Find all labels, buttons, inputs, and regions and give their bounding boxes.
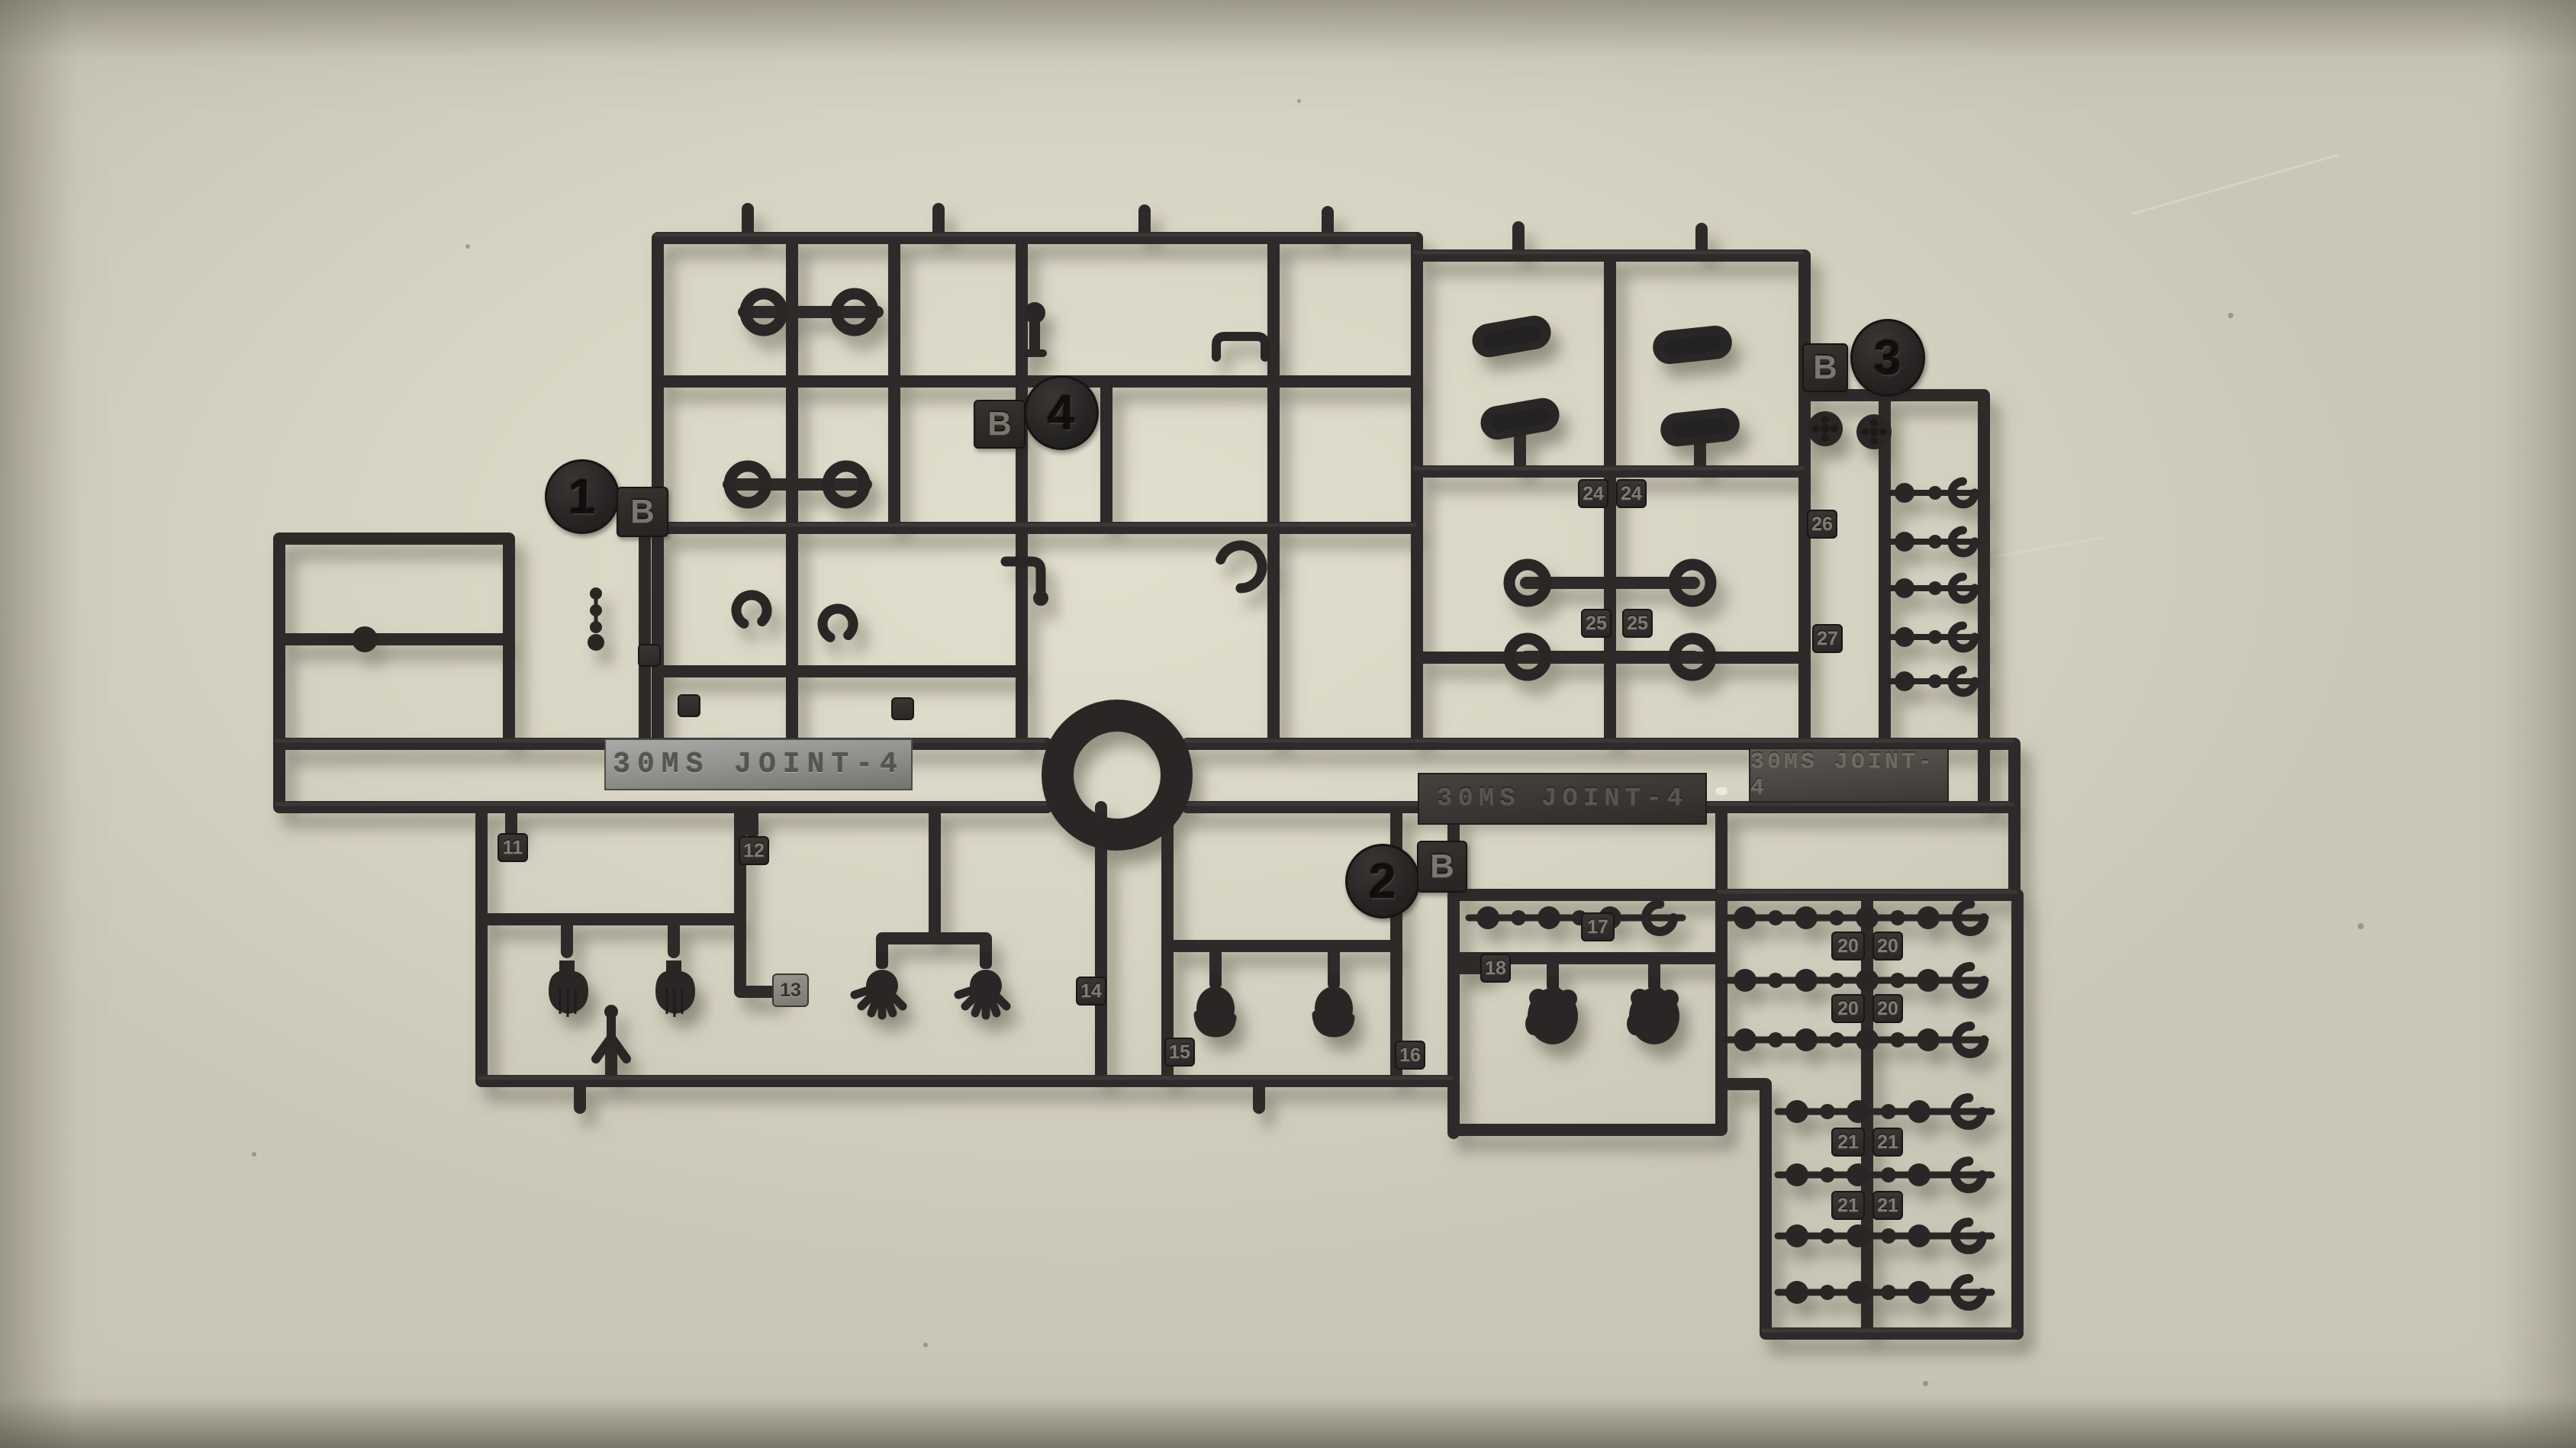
part-tag-21-right: 21 (1872, 1128, 1903, 1157)
part-tag-15: 15 (1164, 1038, 1195, 1067)
part-tag-18: 18 (1480, 954, 1511, 983)
runner-sprue (0, 0, 2576, 1448)
runner-marker-4: 4 (1024, 375, 1099, 450)
curved-bracket-part (1213, 539, 1268, 594)
flat-hand-part (655, 961, 695, 1017)
ball-link-part (1891, 577, 1979, 600)
clip-ring-part (731, 590, 773, 632)
material-tab-2: B (1417, 841, 1467, 893)
ball-link-part (1891, 626, 1979, 648)
material-tab-1: B (617, 487, 668, 537)
bracket-part (1216, 336, 1265, 357)
runner-marker-1: 1 (545, 459, 620, 534)
bean-cover-part (1470, 313, 1554, 359)
part-tag-11: 11 (497, 833, 528, 862)
ball-link-chain-part (1726, 967, 1985, 994)
ball-link-chain-part (1778, 1098, 1992, 1125)
ball-link-chain-part (1778, 1161, 1992, 1189)
part-tag-small (678, 694, 700, 717)
bean-cover-part (1651, 324, 1734, 366)
ball-link-part (1891, 670, 1979, 693)
name-plate-right: 30MS JOINT-4 (1749, 748, 1949, 803)
ball-link-chain-part (1778, 1279, 1992, 1306)
part-tag-small (638, 644, 661, 667)
material-tab-3: B (1802, 343, 1848, 392)
part-tag-21-left: 21 (1831, 1128, 1865, 1157)
name-plate-silver: 30MS JOINT-4 (604, 738, 913, 790)
part-tag-20-left: 20 (1831, 932, 1865, 961)
runner-marker-3: 3 (1850, 319, 1925, 397)
bean-cover-part (1478, 395, 1562, 442)
part-tag-25-right: 25 (1622, 609, 1653, 638)
joint-disc-part (1808, 411, 1843, 446)
part-tag-12: 12 (739, 836, 769, 865)
ball-link-chain-part (1469, 904, 1682, 932)
joint-disc-part (1856, 414, 1892, 449)
ball-link-part (1891, 530, 1979, 553)
part-tag-27: 27 (1812, 624, 1843, 653)
holding-hand-part (1196, 973, 1235, 1033)
part-tag-24-right: 24 (1616, 479, 1647, 508)
open-hand-part (958, 952, 1006, 1015)
clip-ring-part (817, 603, 859, 645)
joint-part (327, 626, 378, 652)
part-tag-24-left: 24 (1578, 479, 1608, 508)
ball-link-part (1891, 481, 1979, 504)
holding-hand-part (1315, 973, 1353, 1033)
runner-marker-2: 2 (1345, 844, 1420, 919)
part-tag-26: 26 (1807, 510, 1837, 539)
part-tag-20-left2: 20 (1831, 994, 1865, 1023)
part-tag-21-right2: 21 (1872, 1191, 1903, 1220)
small-joint-chain-part (588, 587, 604, 651)
flat-hand-part (549, 961, 588, 1017)
part-tag-16: 16 (1395, 1041, 1425, 1070)
ball-link-chain-part (1726, 904, 1985, 932)
part-tag-21-left2: 21 (1831, 1191, 1865, 1220)
ball-link-chain-part (1778, 1222, 1992, 1250)
center-hub-ring (1058, 716, 1177, 835)
photo-scene: 30MS JOINT-4 30MS JOINT-4 30MS JOINT-4 1… (0, 0, 2576, 1448)
part-tag-25-left: 25 (1581, 609, 1612, 638)
name-plate-center: 30MS JOINT-4 (1418, 773, 1707, 825)
material-tab-4: B (974, 400, 1026, 449)
part-tag-20-right: 20 (1872, 932, 1903, 961)
fist-hand-part (1525, 977, 1578, 1044)
fist-hand-part (1627, 977, 1679, 1044)
bean-cover-part (1659, 407, 1741, 449)
part-tag-small (891, 697, 914, 720)
part-tag-20-right2: 20 (1872, 994, 1903, 1023)
part-tag-14: 14 (1076, 977, 1106, 1006)
part-tag-13: 13 (772, 973, 809, 1007)
ball-link-chain-part (1726, 1026, 1985, 1054)
open-hand-part (855, 952, 903, 1015)
part-tag-17: 17 (1581, 912, 1615, 941)
